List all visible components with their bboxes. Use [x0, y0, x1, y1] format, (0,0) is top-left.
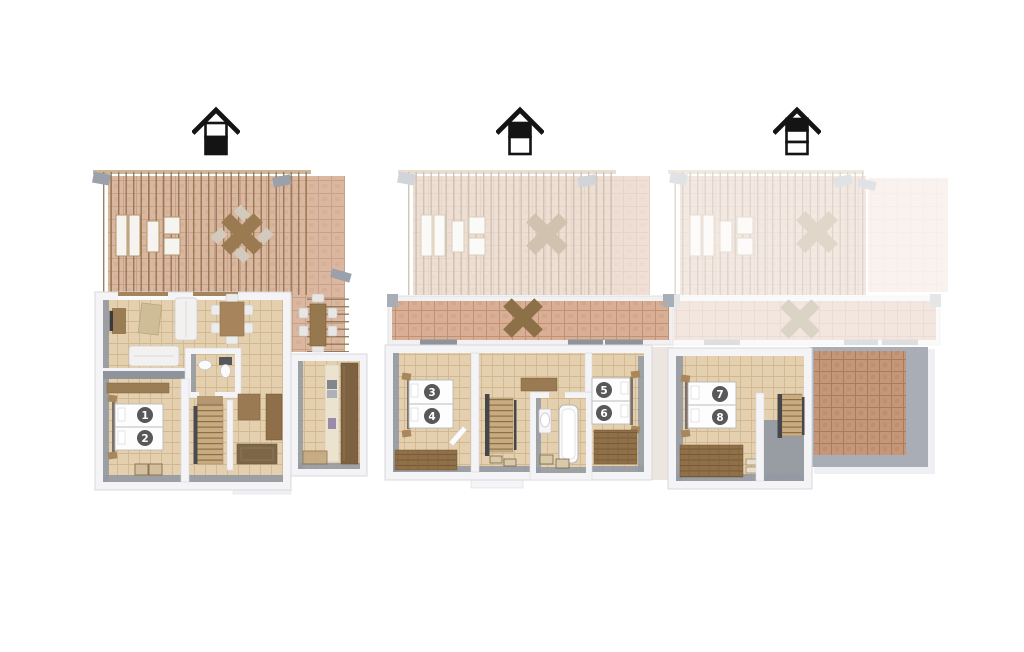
stair-landing — [197, 396, 223, 404]
floor-indicator-first-icon[interactable] — [496, 104, 544, 164]
first-floor-rooms: 3 4 — [385, 345, 652, 488]
nightstand — [631, 370, 641, 378]
nightstand — [680, 374, 690, 382]
bed-marker-4: 4 — [424, 408, 440, 424]
toilet-tank — [219, 357, 232, 365]
door-opening — [549, 392, 565, 399]
wall-shadow — [103, 475, 283, 482]
svg-text:3: 3 — [428, 387, 435, 399]
outdoor-table — [310, 304, 326, 346]
balcony-post — [387, 294, 398, 307]
building: 1 2 — [95, 292, 291, 494]
stair-steps — [489, 398, 513, 452]
rug — [135, 464, 148, 475]
stair-steps — [197, 404, 223, 464]
pillow — [118, 408, 125, 421]
bed-marker-3: 3 — [424, 384, 440, 400]
dresser — [395, 450, 457, 470]
house-band-top — [787, 119, 808, 131]
svg-text:4: 4 — [428, 411, 435, 423]
house-band-top — [206, 123, 227, 137]
ground-floor-ghost — [668, 170, 948, 295]
floor-indicator-attic-icon[interactable] — [773, 104, 821, 164]
pillow — [411, 408, 418, 421]
rug — [138, 303, 162, 335]
stair-railing — [514, 400, 517, 450]
cabinet — [238, 394, 260, 420]
cooktop — [327, 380, 337, 389]
roof-tiles — [814, 351, 906, 455]
doormat — [504, 459, 516, 466]
svg-text:6: 6 — [600, 408, 607, 420]
floor-plan-sheet: 1 2 — [0, 0, 1024, 652]
nightstand — [108, 451, 118, 459]
stair-railing — [485, 394, 490, 456]
doormat — [490, 456, 502, 463]
bed-platform — [594, 430, 637, 464]
house-band-top — [510, 123, 531, 137]
bath-mat — [556, 459, 569, 468]
doormat — [237, 444, 277, 464]
attic-rooms: 7 8 — [668, 347, 935, 489]
parapet-edge — [814, 467, 935, 474]
svg-text:5: 5 — [600, 385, 607, 397]
shelf — [107, 383, 169, 393]
pillow — [691, 386, 699, 399]
headboard — [685, 381, 688, 429]
parapet-edge — [928, 349, 935, 470]
dining-table — [220, 302, 244, 336]
door-threshold — [420, 340, 457, 346]
pillow — [118, 431, 125, 444]
kitchen-sink — [327, 390, 337, 398]
attic-floor-plan: 7 8 — [664, 168, 964, 498]
door-threshold — [568, 340, 603, 346]
balcony-ghost — [669, 294, 941, 345]
nightstand — [681, 429, 691, 437]
stairs — [194, 396, 234, 470]
nightstand — [107, 394, 117, 402]
interior-wall — [756, 393, 764, 481]
tv — [110, 311, 114, 331]
bed-marker-2: 2 — [137, 430, 153, 446]
floor-indicator-ground-icon[interactable] — [192, 104, 240, 164]
stair-railing — [802, 397, 805, 435]
house-band-bottom — [206, 137, 227, 154]
nightstand — [402, 429, 412, 437]
pillow — [691, 409, 699, 422]
door-threshold — [605, 340, 643, 346]
svg-text:1: 1 — [141, 410, 148, 422]
doormat — [303, 451, 327, 464]
kitchen — [291, 354, 367, 476]
bathroom — [530, 392, 592, 480]
interior-wall — [181, 379, 189, 482]
sink — [541, 413, 550, 427]
interior-wall — [585, 353, 592, 392]
house-band-middle — [787, 131, 808, 143]
interior-wall — [227, 400, 233, 470]
svg-text:7: 7 — [716, 389, 723, 401]
house-band-bottom — [510, 137, 531, 154]
console — [521, 378, 557, 391]
dishwasher — [328, 418, 336, 429]
first-floor-plan: 3 4 — [383, 168, 678, 498]
stair-railing — [778, 394, 783, 438]
ground-floor-ghost — [397, 170, 650, 295]
wardrobe — [266, 394, 282, 440]
kitchen-counter — [325, 365, 339, 462]
stair-steps — [782, 394, 802, 436]
pillow — [621, 382, 628, 394]
wall-shadow — [103, 371, 187, 379]
headboard — [630, 377, 633, 425]
stair-hall — [756, 393, 805, 481]
bed-marker-8: 8 — [712, 409, 728, 425]
ground-floor-plan: 1 2 — [85, 168, 379, 498]
stair-railing — [194, 406, 198, 464]
roof-terrace — [810, 347, 935, 474]
pillow — [621, 405, 628, 417]
sink — [199, 360, 212, 370]
svg-text:8: 8 — [716, 412, 723, 424]
balcony — [387, 294, 674, 345]
bed-marker-5: 5 — [596, 382, 612, 398]
bath-mat — [540, 455, 553, 464]
nightstand — [401, 372, 411, 380]
tv-unit — [112, 308, 126, 334]
wardrobe — [680, 445, 743, 477]
interior-wall — [471, 353, 479, 472]
bed-marker-7: 7 — [712, 386, 728, 402]
svg-text:2: 2 — [141, 433, 148, 445]
toilet — [221, 365, 231, 378]
pillow — [411, 384, 418, 397]
bathroom — [185, 348, 241, 399]
house-band-bottom — [787, 142, 808, 154]
bed-marker-6: 6 — [596, 405, 612, 421]
rug — [149, 464, 162, 475]
bed-marker-1: 1 — [137, 407, 153, 423]
